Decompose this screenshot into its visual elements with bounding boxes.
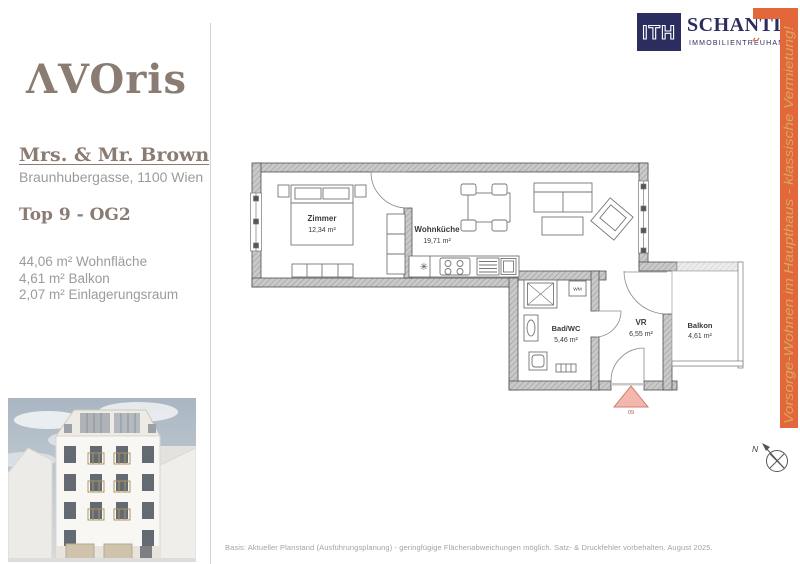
room-zimmer: Zimmer 12,34 m² — [278, 185, 405, 277]
compass-icon: N — [752, 443, 788, 472]
neighbor-building-left — [8, 448, 52, 562]
room-wohnkueche: ✳ Wohnküche 19,71 m² — [409, 183, 633, 277]
room-label: VR — [635, 318, 646, 327]
room-label: Zimmer — [308, 214, 337, 223]
avoris-logo: ΛVOris — [26, 56, 187, 103]
room-label: Bad/WC — [552, 324, 581, 333]
dishwasher-symbol: ✳ — [420, 262, 428, 273]
main-building — [56, 410, 160, 562]
ith-logo-letters: ITH — [642, 23, 676, 44]
entrance-threshold — [611, 383, 644, 386]
ith-logo: ITH — [637, 13, 681, 51]
room-area: 5,46 m² — [554, 337, 578, 344]
room-area: 19,71 m² — [423, 238, 451, 245]
street — [8, 558, 196, 562]
washing-machine-label: WM — [573, 287, 582, 293]
area-line-living: 44,06 m² Wohnfläche — [19, 254, 178, 271]
room-label: Wohnküche — [414, 225, 460, 234]
floorplan-flyer-page: { "branding": { "avoris_logo": "ΛVOris",… — [0, 0, 800, 564]
entrance-marker: 09 — [614, 386, 648, 416]
windows — [251, 181, 649, 253]
room-label: Balkon — [687, 321, 712, 330]
building-rendering — [8, 398, 196, 562]
area-summary: 44,06 m² Wohnfläche 4,61 m² Balkon 2,07 … — [19, 254, 178, 304]
entrance-number: 09 — [628, 410, 634, 416]
room-vr: VR 6,55 m² — [629, 318, 653, 338]
project-address: Braunhubergasse, 1100 Wien — [19, 169, 203, 185]
client-name: Mrs. & Mr. Brown — [19, 144, 209, 166]
vertical-divider — [210, 23, 211, 564]
compass-north-label: N — [752, 444, 759, 454]
neighbor-building-right — [158, 448, 196, 562]
ribbon-text: Vorsorge-Wohnen im Haupthaus - klassisch… — [782, 25, 796, 424]
ribbon: Vorsorge-Wohnen im Haupthaus - klassisch… — [753, 8, 798, 428]
room-balkon: Balkon 4,61 m² — [672, 262, 743, 368]
footer-disclaimer: Basis: Aktueller Planstand (Ausführungsp… — [225, 543, 713, 552]
walls — [252, 163, 677, 390]
company-name: SCHANTL — [687, 14, 787, 37]
company-subtitle: IMMOBILIENTREUHAND — [689, 40, 791, 47]
room-area: 4,61 m² — [688, 333, 712, 340]
area-line-storage: 2,07 m² Einlagerungsraum — [19, 287, 178, 304]
doors — [371, 172, 667, 381]
room-area: 6,55 m² — [629, 331, 653, 338]
unit-number: Top 9 - OG2 — [19, 205, 131, 225]
area-line-balcony: 4,61 m² Balkon — [19, 271, 178, 288]
room-area: 12,34 m² — [308, 227, 336, 234]
room-bad-wc: WM Bad/WC 5,46 m² — [524, 280, 586, 372]
